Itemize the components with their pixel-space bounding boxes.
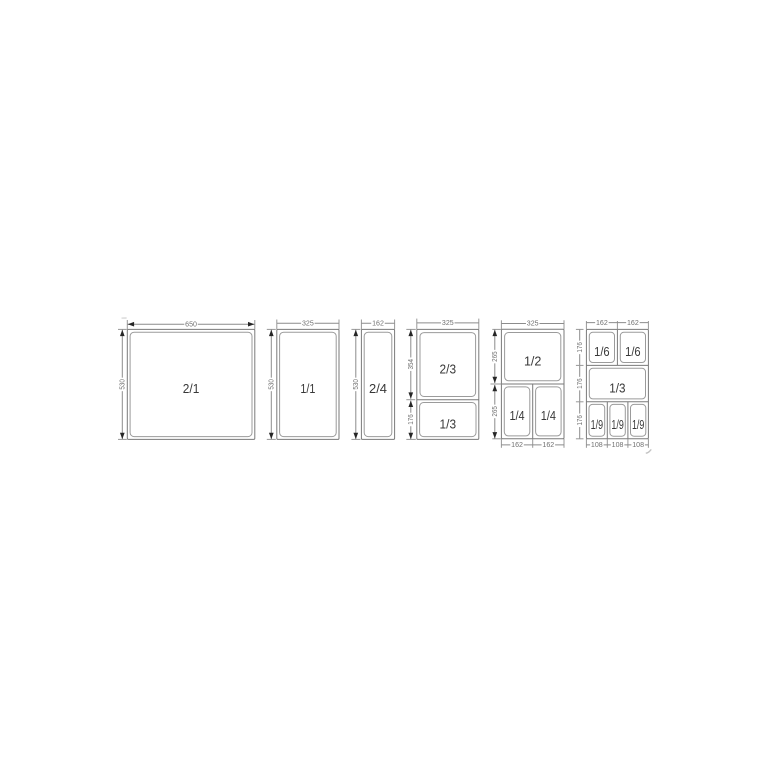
svg-text:1/9: 1/9 [611,417,623,432]
svg-text:354: 354 [408,359,415,370]
svg-text:162: 162 [511,442,523,449]
svg-text:1/2: 1/2 [524,354,542,369]
svg-text:108: 108 [591,442,603,449]
svg-text:2/3: 2/3 [440,361,457,376]
svg-text:265: 265 [492,351,499,362]
svg-text:265: 265 [492,406,499,417]
svg-text:162: 162 [627,320,639,327]
svg-text:530: 530 [269,379,276,390]
svg-text:1/9: 1/9 [591,417,603,432]
svg-text:1/4: 1/4 [541,408,556,423]
svg-text:530: 530 [353,379,360,390]
svg-text:650: 650 [185,321,197,328]
svg-text:325: 325 [442,320,454,327]
svg-text:1/6: 1/6 [625,344,641,359]
svg-text:325: 325 [527,321,539,328]
svg-text:176: 176 [408,414,415,425]
svg-text:530: 530 [120,379,127,390]
svg-text:1/1: 1/1 [300,381,315,396]
svg-text:2/1: 2/1 [183,381,200,396]
svg-text:1/6: 1/6 [594,344,610,359]
svg-text:176: 176 [577,342,584,353]
svg-text:108: 108 [612,442,624,449]
svg-text:176: 176 [577,415,584,426]
svg-text:108: 108 [632,442,644,449]
svg-text:325: 325 [302,321,314,328]
svg-text:1/3: 1/3 [440,416,457,431]
svg-text:162: 162 [596,320,608,327]
svg-text:2/4: 2/4 [369,381,387,396]
svg-text:1/4: 1/4 [509,408,524,423]
svg-text:1/9: 1/9 [632,417,644,432]
svg-text:176: 176 [577,378,584,389]
svg-text:162: 162 [372,321,384,328]
svg-text:1/3: 1/3 [609,380,625,395]
svg-text:162: 162 [542,442,554,449]
